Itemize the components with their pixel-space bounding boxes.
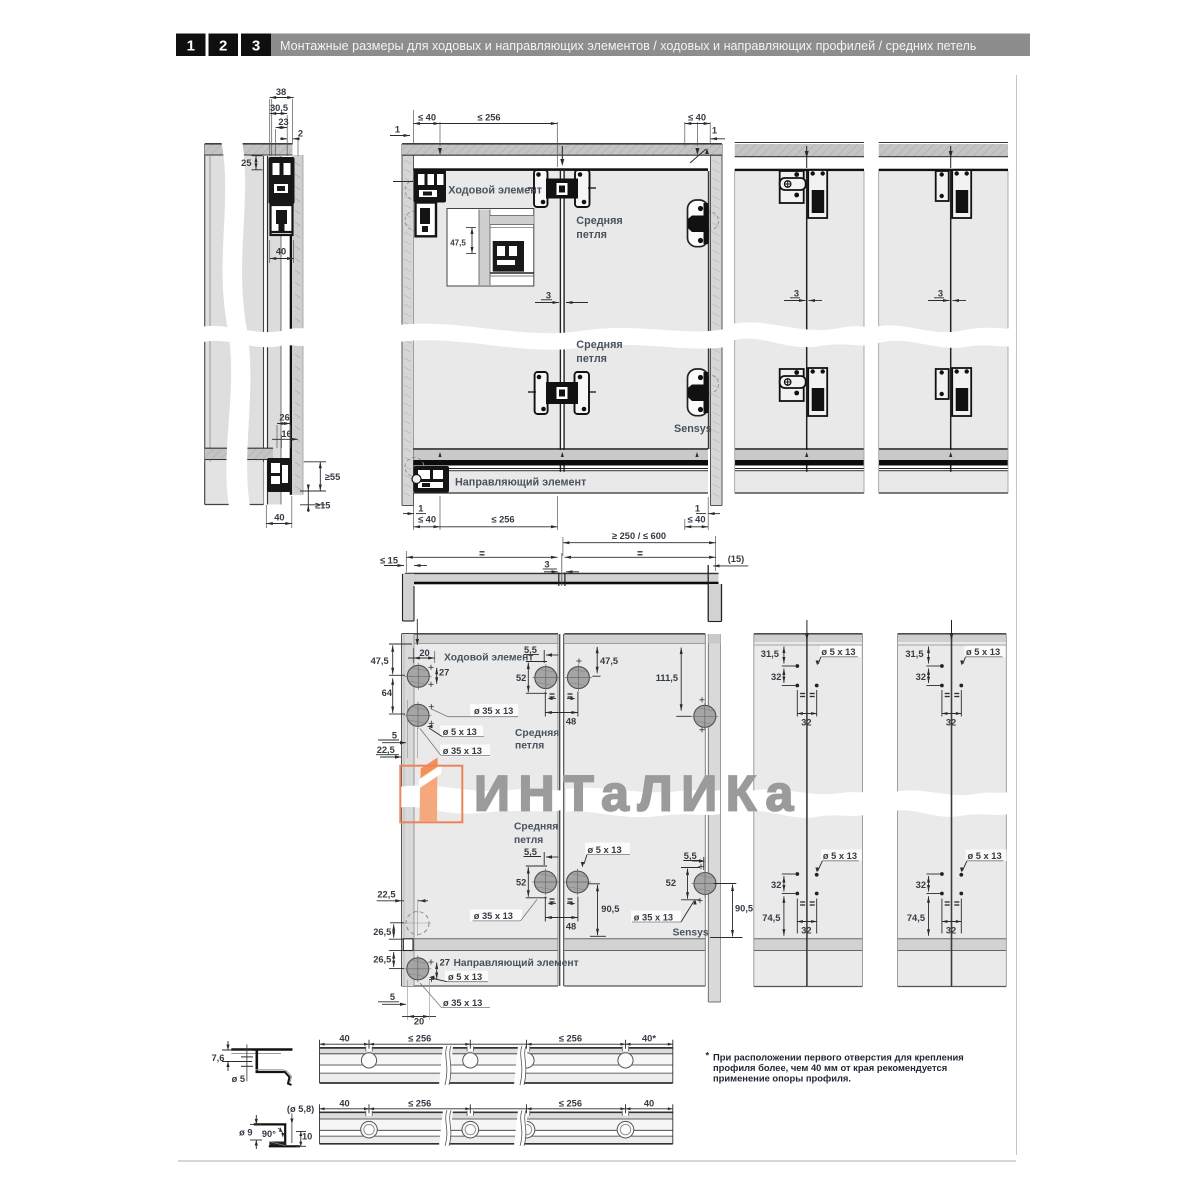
svg-text:26: 26 [279,413,289,423]
svg-text:Ходовой элемент: Ходовой элемент [448,185,542,197]
svg-text:90,5: 90,5 [601,904,619,914]
svg-text:≤ 40: ≤ 40 [688,113,706,123]
svg-text:*: * [706,1050,710,1061]
svg-text:Sensys: Sensys [673,928,709,939]
svg-text:≤ 256: ≤ 256 [559,1099,582,1109]
svg-text:≥55: ≥55 [325,472,340,482]
svg-text:1: 1 [187,38,195,55]
svg-text:ø 5 x 13: ø 5 x 13 [823,851,857,861]
svg-text:≥ 250 / ≤ 600: ≥ 250 / ≤ 600 [612,531,666,541]
svg-text:ø 35 x 13: ø 35 x 13 [474,706,513,716]
svg-text:Направляющий элемент: Направляющий элемент [454,958,579,969]
svg-text:Средняя: Средняя [576,215,622,227]
svg-text:Ходовой элемент: Ходовой элемент [444,653,533,664]
svg-text:5: 5 [392,731,397,741]
svg-text:≤ 256: ≤ 256 [477,113,500,123]
svg-text:90,5: 90,5 [735,904,753,914]
svg-text:Монтажные размеры для ходовых: Монтажные размеры для ходовых и направля… [280,39,977,53]
svg-text:1: 1 [395,125,400,135]
svg-text:≤ 256: ≤ 256 [491,515,514,525]
svg-text:≤ 256: ≤ 256 [408,1099,431,1109]
svg-text:ø 35 x 13: ø 35 x 13 [474,911,513,921]
svg-text:47,5: 47,5 [600,656,618,666]
svg-text:≤ 256: ≤ 256 [559,1034,582,1044]
svg-text:20: 20 [414,1017,424,1027]
svg-text:ø 5 x 13: ø 5 x 13 [588,845,622,855]
svg-text:≤ 40: ≤ 40 [418,113,436,123]
svg-text:25: 25 [241,158,251,168]
svg-text:74,5: 74,5 [907,913,925,923]
svg-text:≥15: ≥15 [315,501,330,511]
svg-text:Средняя: Средняя [515,728,559,739]
svg-text:2: 2 [219,38,227,55]
svg-text:ø 9: ø 9 [239,1128,252,1138]
svg-text:1: 1 [418,504,423,514]
svg-text:Направляющий элемент: Направляющий элемент [455,477,586,489]
svg-text:ø 5 x 13: ø 5 x 13 [448,972,482,982]
svg-text:ø 5 x 13: ø 5 x 13 [443,727,477,737]
svg-text:32: 32 [946,718,956,728]
svg-text:40: 40 [339,1034,349,1044]
svg-text:32: 32 [801,718,811,728]
svg-text:профиля более, чем 40 мм от кр: профиля более, чем 40 мм от края рекомен… [713,1062,947,1073]
svg-text:(15): (15) [728,554,745,564]
svg-text:Средняя: Средняя [576,339,622,351]
svg-text:32: 32 [916,672,926,682]
svg-text:32: 32 [771,672,781,682]
svg-text:90°: 90° [262,1129,276,1139]
svg-text:5,5: 5,5 [524,847,537,857]
svg-text:ø 35 x 13: ø 35 x 13 [443,746,482,756]
svg-text:40: 40 [274,513,284,523]
svg-text:≤ 15: ≤ 15 [380,555,398,565]
svg-text:≤ 256: ≤ 256 [408,1034,431,1044]
svg-text:26,5: 26,5 [373,927,391,937]
svg-text:ø 5 x 13: ø 5 x 13 [821,647,855,657]
svg-text:≤ 40: ≤ 40 [687,515,705,525]
svg-text:47,5: 47,5 [371,656,389,666]
svg-text:Sensys: Sensys [674,423,712,435]
svg-text:≤ 40: ≤ 40 [418,515,436,525]
svg-text:2: 2 [298,129,303,139]
svg-text:При расположении первого отвер: При расположении первого отверстия для к… [713,1052,964,1063]
svg-text:74,5: 74,5 [762,913,780,923]
svg-text:3: 3 [938,289,943,299]
svg-text:52: 52 [516,673,526,683]
svg-text:ø 5: ø 5 [232,1074,245,1084]
svg-text:32: 32 [801,926,811,936]
svg-text:применение опоры профиля.: применение опоры профиля. [713,1073,851,1084]
svg-text:27: 27 [439,667,449,677]
svg-text:3: 3 [546,291,551,301]
svg-text:ø 35 x 13: ø 35 x 13 [634,913,673,923]
svg-text:40: 40 [644,1099,654,1109]
svg-text:30,5: 30,5 [270,103,288,113]
svg-text:1: 1 [712,126,717,136]
svg-text:ø 35 x 13: ø 35 x 13 [443,998,482,1008]
svg-text:47,5: 47,5 [450,239,466,248]
svg-text:20: 20 [419,648,429,658]
svg-text:петля: петля [514,835,543,846]
svg-text:22,5: 22,5 [377,890,395,900]
svg-text:3: 3 [252,38,260,55]
svg-text:ø 5 x 13: ø 5 x 13 [968,851,1002,861]
svg-text:48: 48 [566,922,576,932]
svg-text:ø 5 x 13: ø 5 x 13 [966,647,1000,657]
svg-text:32: 32 [946,926,956,936]
svg-text:40: 40 [276,247,286,257]
svg-text:27: 27 [440,958,450,968]
svg-text:10: 10 [302,1132,312,1142]
svg-text:3: 3 [794,289,799,299]
svg-text:3: 3 [544,560,549,570]
svg-text:16: 16 [281,429,291,439]
svg-text:31,5: 31,5 [905,649,923,659]
svg-text:38: 38 [276,87,286,97]
svg-text:5,5: 5,5 [684,851,697,861]
svg-text:22,5: 22,5 [377,745,395,755]
svg-text:64: 64 [382,688,393,698]
svg-text:32: 32 [916,880,926,890]
svg-text:ИНТаЛИКа: ИНТаЛИКа [474,766,802,822]
svg-text:петля: петля [515,740,544,751]
svg-text:48: 48 [566,717,576,727]
svg-text:5,5: 5,5 [524,645,537,655]
svg-text:111,5: 111,5 [656,673,678,683]
svg-text:23: 23 [278,117,288,127]
svg-text:26,5: 26,5 [373,955,391,965]
svg-text:52: 52 [516,878,526,888]
svg-text:40: 40 [339,1099,349,1109]
svg-text:1: 1 [695,504,700,514]
svg-text:5: 5 [390,992,395,1002]
svg-text:52: 52 [666,878,676,888]
svg-text:31,5: 31,5 [761,649,779,659]
svg-text:32: 32 [771,880,781,890]
svg-text:40*: 40* [642,1034,656,1044]
svg-text:(ø 5,8): (ø 5,8) [287,1104,314,1114]
svg-text:Средняя: Средняя [514,822,558,833]
svg-text:петля: петля [576,353,607,365]
svg-text:петля: петля [576,229,607,241]
